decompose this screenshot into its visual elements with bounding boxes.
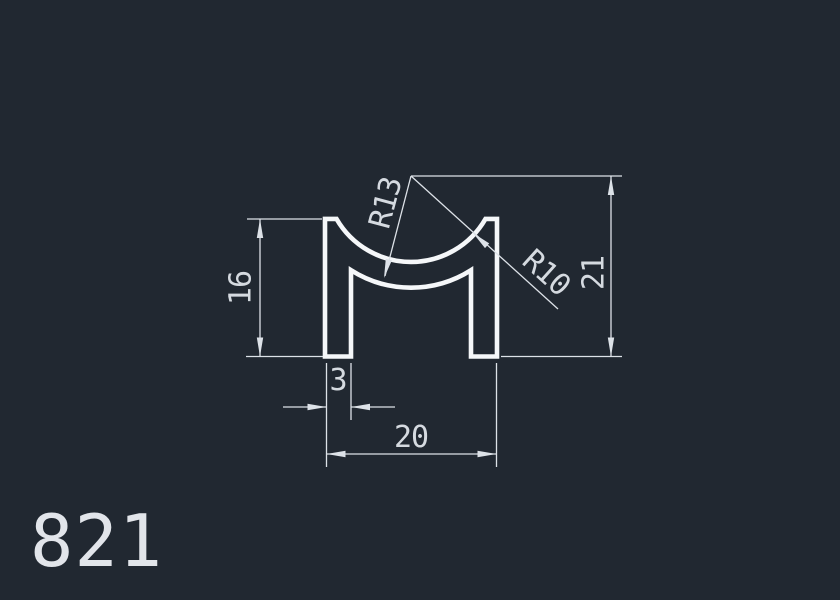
dim-16-arrow-down-icon [257,338,263,357]
part-number-label: 821 [30,499,163,583]
dim-20-arrow-left-icon [327,451,346,457]
dimension-20: 20 [327,363,497,467]
dim-16-arrow-up-icon [257,219,263,238]
dim-20-arrow-right-icon [478,451,497,457]
dim-21-arrow-up-icon [608,176,614,195]
dim-21-label: 21 [577,256,612,290]
dim-20-label: 20 [394,420,428,455]
radius-r10: R10 [411,176,577,309]
cad-drawing-canvas: 16 21 3 20 [0,0,840,600]
dim-3-arrow-left-icon [351,404,370,410]
dim-16-label: 16 [224,271,259,305]
dim-3-label: 3 [329,363,346,398]
r13-label: R13 [362,174,409,233]
dim-3-arrow-right-icon [308,404,327,410]
r13-arrow-icon [384,259,392,278]
dimension-3: 3 [283,363,395,467]
dimension-16: 16 [224,219,324,357]
dim-21-arrow-down-icon [608,338,614,357]
cad-drawing: 16 21 3 20 [0,0,840,600]
profile-outline [325,219,497,357]
profile-group [325,219,497,357]
r10-arrow-icon [473,233,489,248]
r10-label: R10 [515,243,576,303]
